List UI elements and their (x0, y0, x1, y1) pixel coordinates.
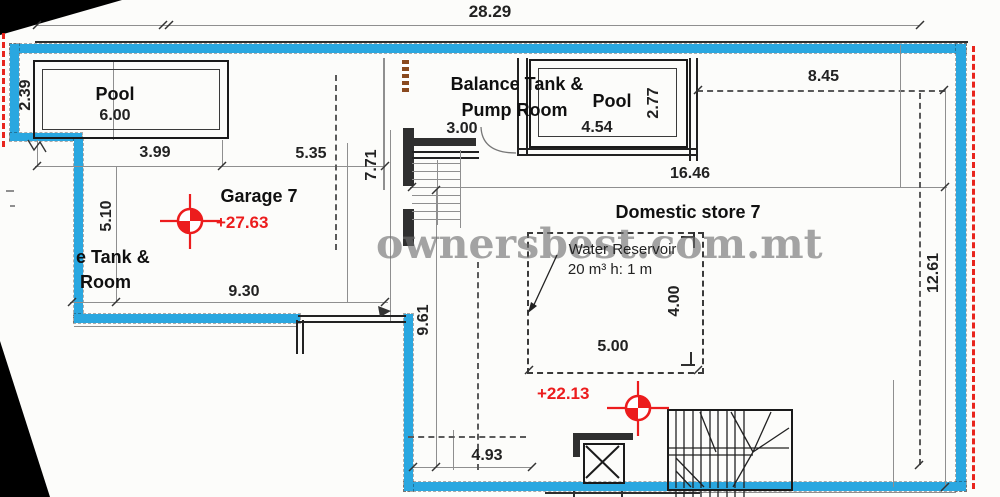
dim-845: 8.45 (786, 68, 861, 86)
room-label-pool-2: Pool (577, 91, 647, 112)
stairs-outline (667, 409, 793, 491)
room-label-left-partial-line1: e Tank & (76, 247, 196, 268)
dim-1646: 16.46 (650, 165, 730, 183)
site-boundary-right (956, 44, 966, 491)
dim-line-1646 (410, 187, 947, 188)
ext-line-garage-right (347, 143, 348, 302)
left-noise-dash-b (10, 205, 15, 207)
ext-line-pool-right (222, 140, 223, 166)
reservoir-title: Water Reservoir (550, 242, 695, 259)
stair-tread (412, 179, 460, 180)
pump-room-bottom-wall (412, 151, 479, 159)
pump-room-door-strip (402, 59, 409, 92)
scan-artifact-top-left (0, 0, 122, 35)
shaft-wall-top (573, 433, 633, 440)
pump-room-wall-bar (412, 138, 476, 146)
room-label-balance-tank-line2: Pump Room (427, 100, 602, 121)
site-boundary-lower-horizontal (74, 314, 300, 323)
shaft-stub-right (621, 491, 623, 497)
dim-510: 5.10 (98, 186, 116, 246)
dim-1261: 12.61 (925, 243, 943, 303)
room-label-left-partial-line2: Room (80, 272, 170, 293)
shaft-wall-left (573, 433, 580, 457)
stair-rail (437, 160, 438, 225)
red-boundary-right (972, 46, 975, 489)
level-value-store: +22.13 (537, 385, 617, 404)
dim-line-771 (383, 58, 385, 190)
wall-shadow-line (74, 326, 298, 327)
dim-500: 5.00 (578, 338, 648, 356)
pool2-bottom-wall (517, 148, 698, 156)
reservoir-spec: 20 m³ h: 1 m (550, 262, 670, 279)
dim-239: 2.39 (17, 65, 35, 125)
stair-tread (412, 171, 460, 172)
dim-771: 7.71 (363, 135, 381, 195)
dim-400: 4.00 (666, 271, 684, 331)
dim-line-930 (70, 302, 388, 303)
ext-line-right-a (900, 45, 901, 188)
centerline-store-right (919, 93, 921, 465)
dim-493: 4.93 (452, 447, 522, 465)
top-wall-line (35, 41, 968, 43)
dim-line-399-535 (35, 166, 385, 167)
bottom-edge-line-right (700, 492, 956, 493)
stair-rail (460, 150, 461, 228)
reservoir-corner-br-h (681, 364, 695, 366)
dim-535: 5.35 (276, 145, 346, 163)
site-boundary-mid-vertical (404, 314, 413, 491)
stair-tread (412, 163, 460, 164)
pool2-right-wall (689, 58, 698, 161)
dim-930: 9.30 (209, 283, 279, 301)
dim-277: 2.77 (645, 73, 663, 133)
level-value-garage: +27.63 (216, 214, 306, 233)
shaft-stub-left (573, 491, 575, 497)
stair-tread (412, 195, 460, 196)
dim-pump-room-width: 3.00 (432, 120, 492, 138)
site-boundary-top (10, 44, 966, 53)
room-label-domestic-store: Domestic store 7 (588, 202, 788, 223)
dim-pool1-width: 6.00 (75, 107, 155, 125)
room-label-garage: Garage 7 (184, 186, 334, 207)
stair-tread (412, 203, 460, 204)
scan-artifact-bottom-left (0, 341, 50, 497)
dim-line-total (37, 25, 920, 26)
room-label-pool-1: Pool (75, 84, 155, 105)
ext-line-right-b (893, 380, 894, 487)
dim-total-width: 28.29 (440, 3, 540, 22)
centerline-store-left (477, 262, 479, 470)
garage-bottom-wall (298, 315, 406, 323)
dim-pool2-width: 4.54 (562, 119, 632, 137)
lift-shaft (583, 443, 625, 484)
garage-bottom-stub (296, 320, 304, 354)
dim-line-1261 (945, 88, 946, 487)
ext-line-pool-left (37, 140, 38, 166)
dim-line-493 (412, 467, 532, 468)
centerline-store-bottom (408, 436, 526, 438)
stair-tread (412, 211, 460, 212)
left-noise-dash-a (6, 190, 14, 192)
floor-plan: ownersbest.com.mt Pool 6.00 Balance Tank… (0, 0, 1000, 497)
dim-961: 9.61 (415, 290, 433, 350)
dim-line-845-dashed (697, 90, 945, 92)
dim-399: 3.99 (120, 144, 190, 162)
red-boundary-left (2, 33, 5, 147)
